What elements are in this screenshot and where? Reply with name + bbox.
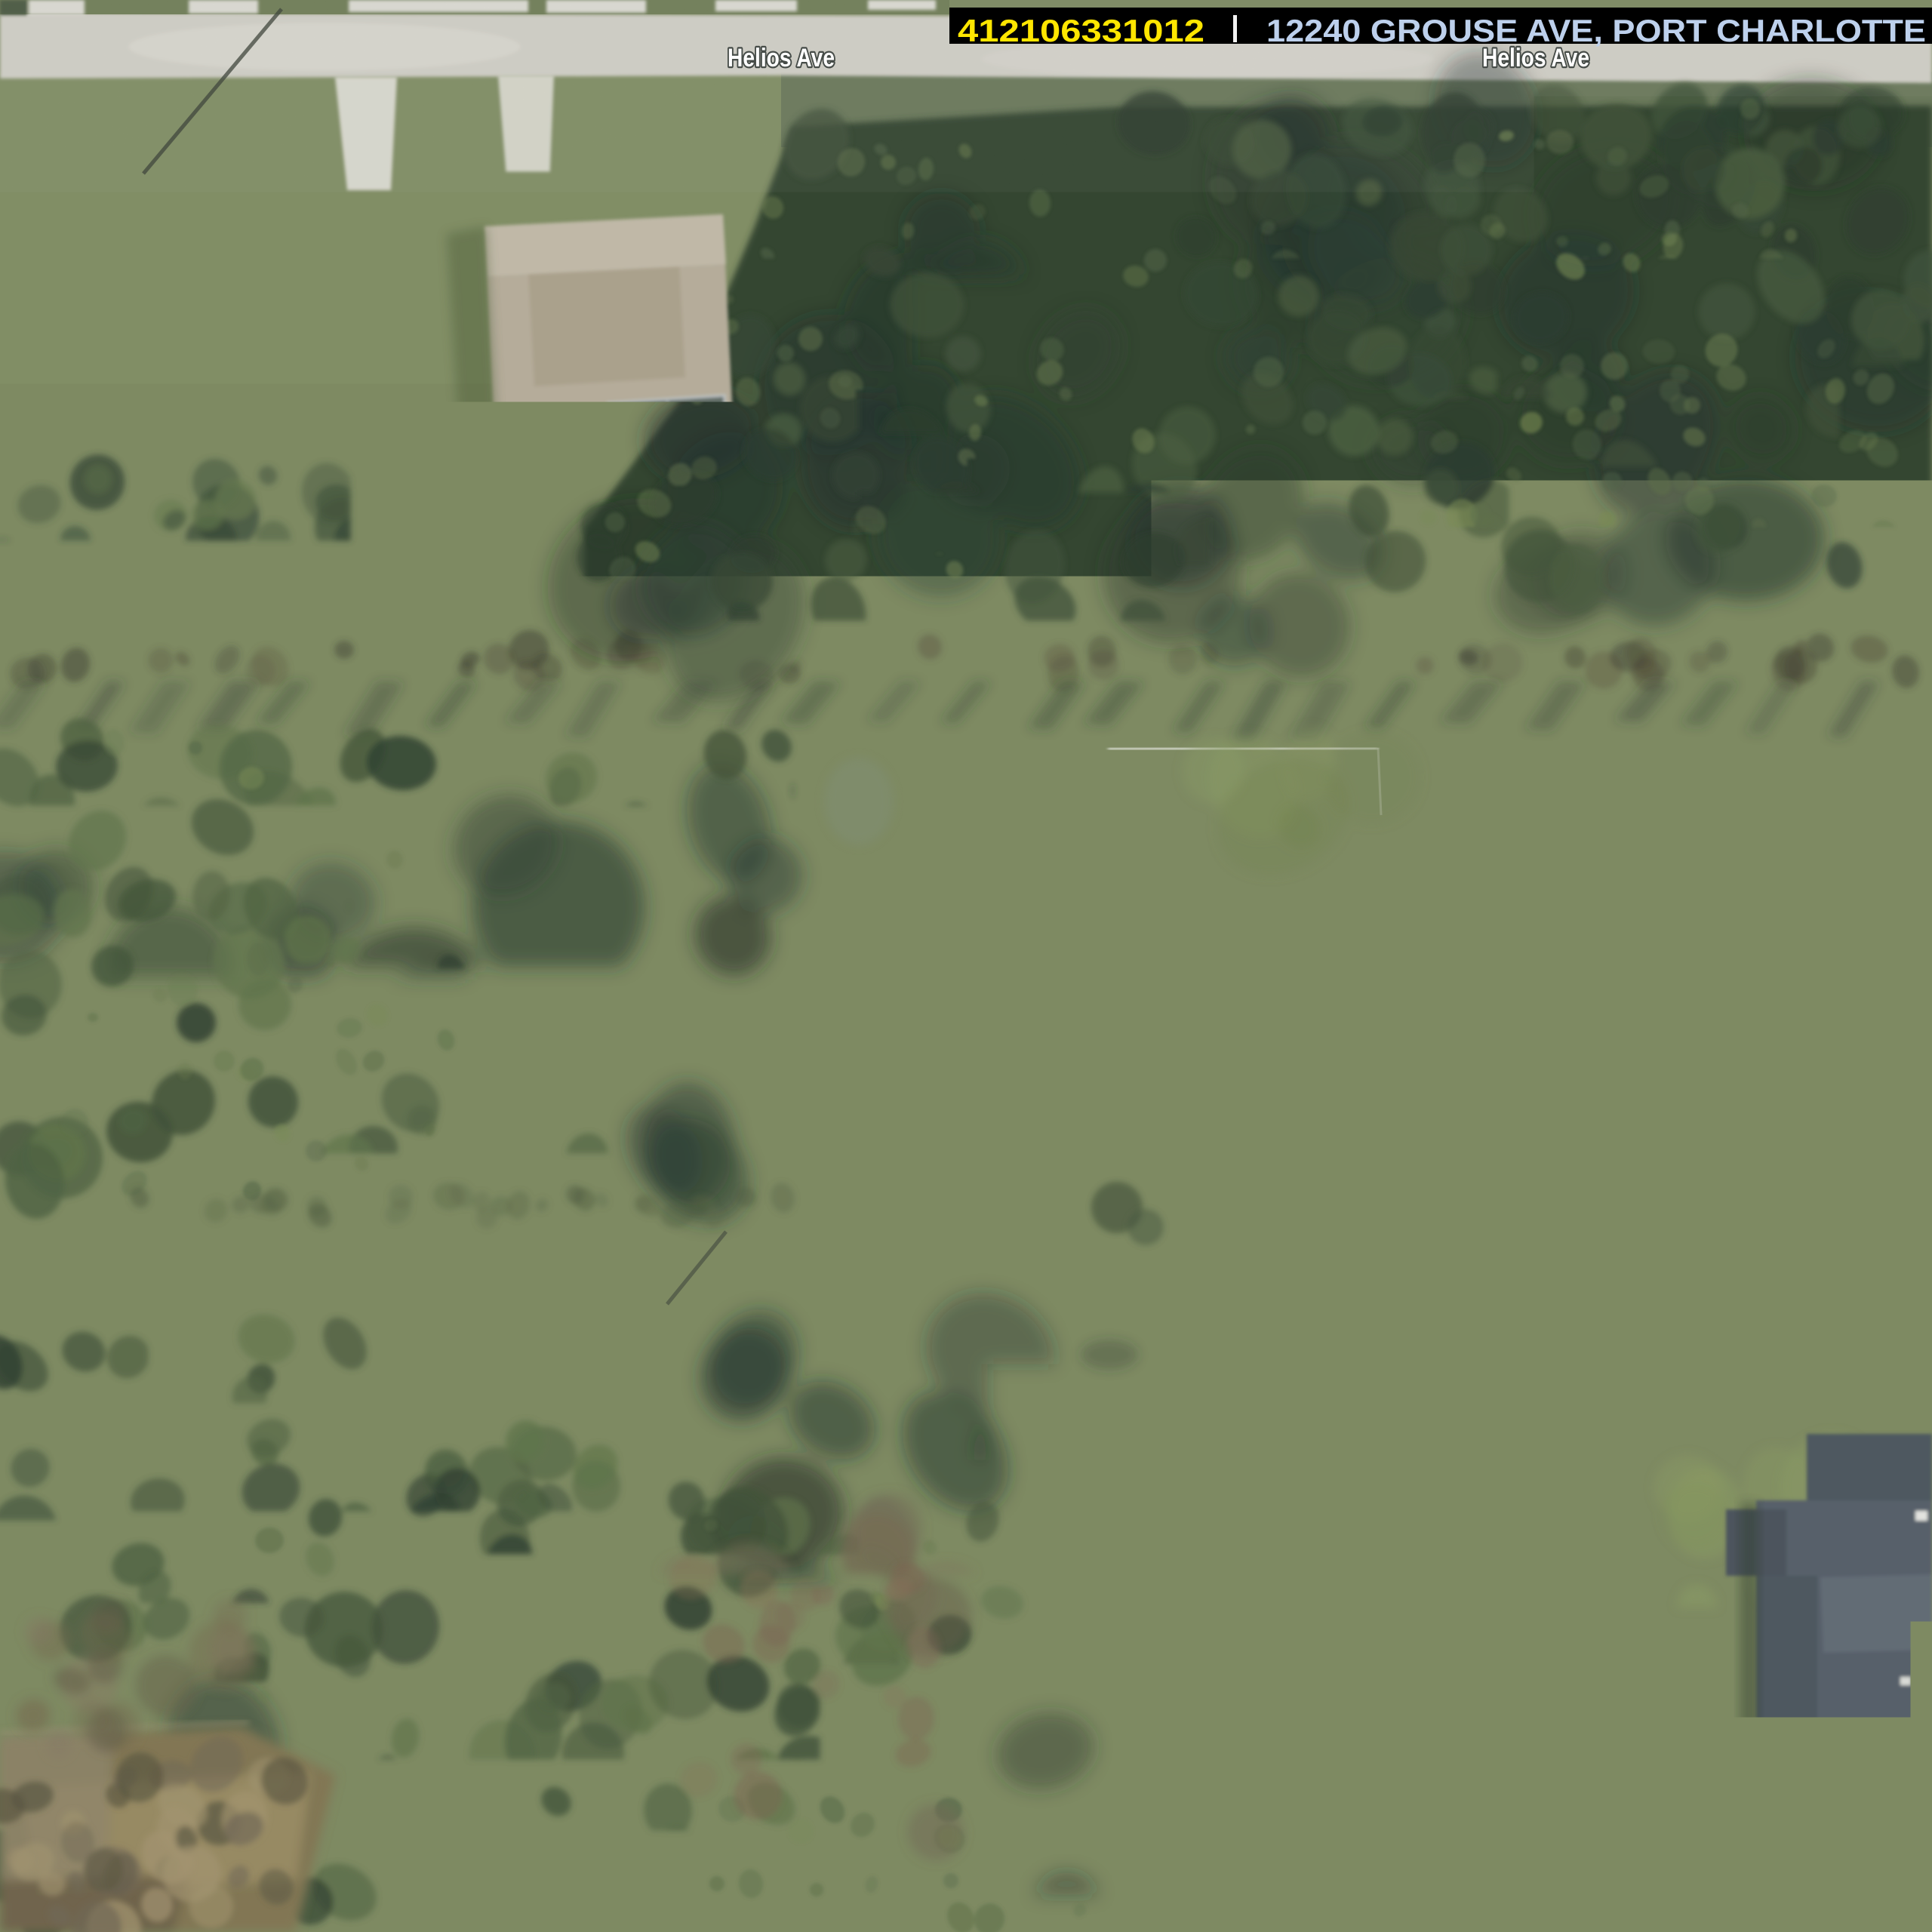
svg-text:Grouse Ave: Grouse Ave — [724, 1255, 838, 1284]
svg-text:12240 GROUSE AVE, PORT CHARLOT: 12240 GROUSE AVE, PORT CHARLOTTE — [1266, 13, 1926, 48]
svg-text:Meadows Ln: Meadows Ln — [1103, 1327, 1130, 1451]
svg-text:Helios Ave: Helios Ave — [728, 44, 835, 72]
svg-text:412106331012: 412106331012 — [958, 13, 1204, 48]
svg-text:Grouse Ave: Grouse Ave — [1435, 1255, 1549, 1284]
